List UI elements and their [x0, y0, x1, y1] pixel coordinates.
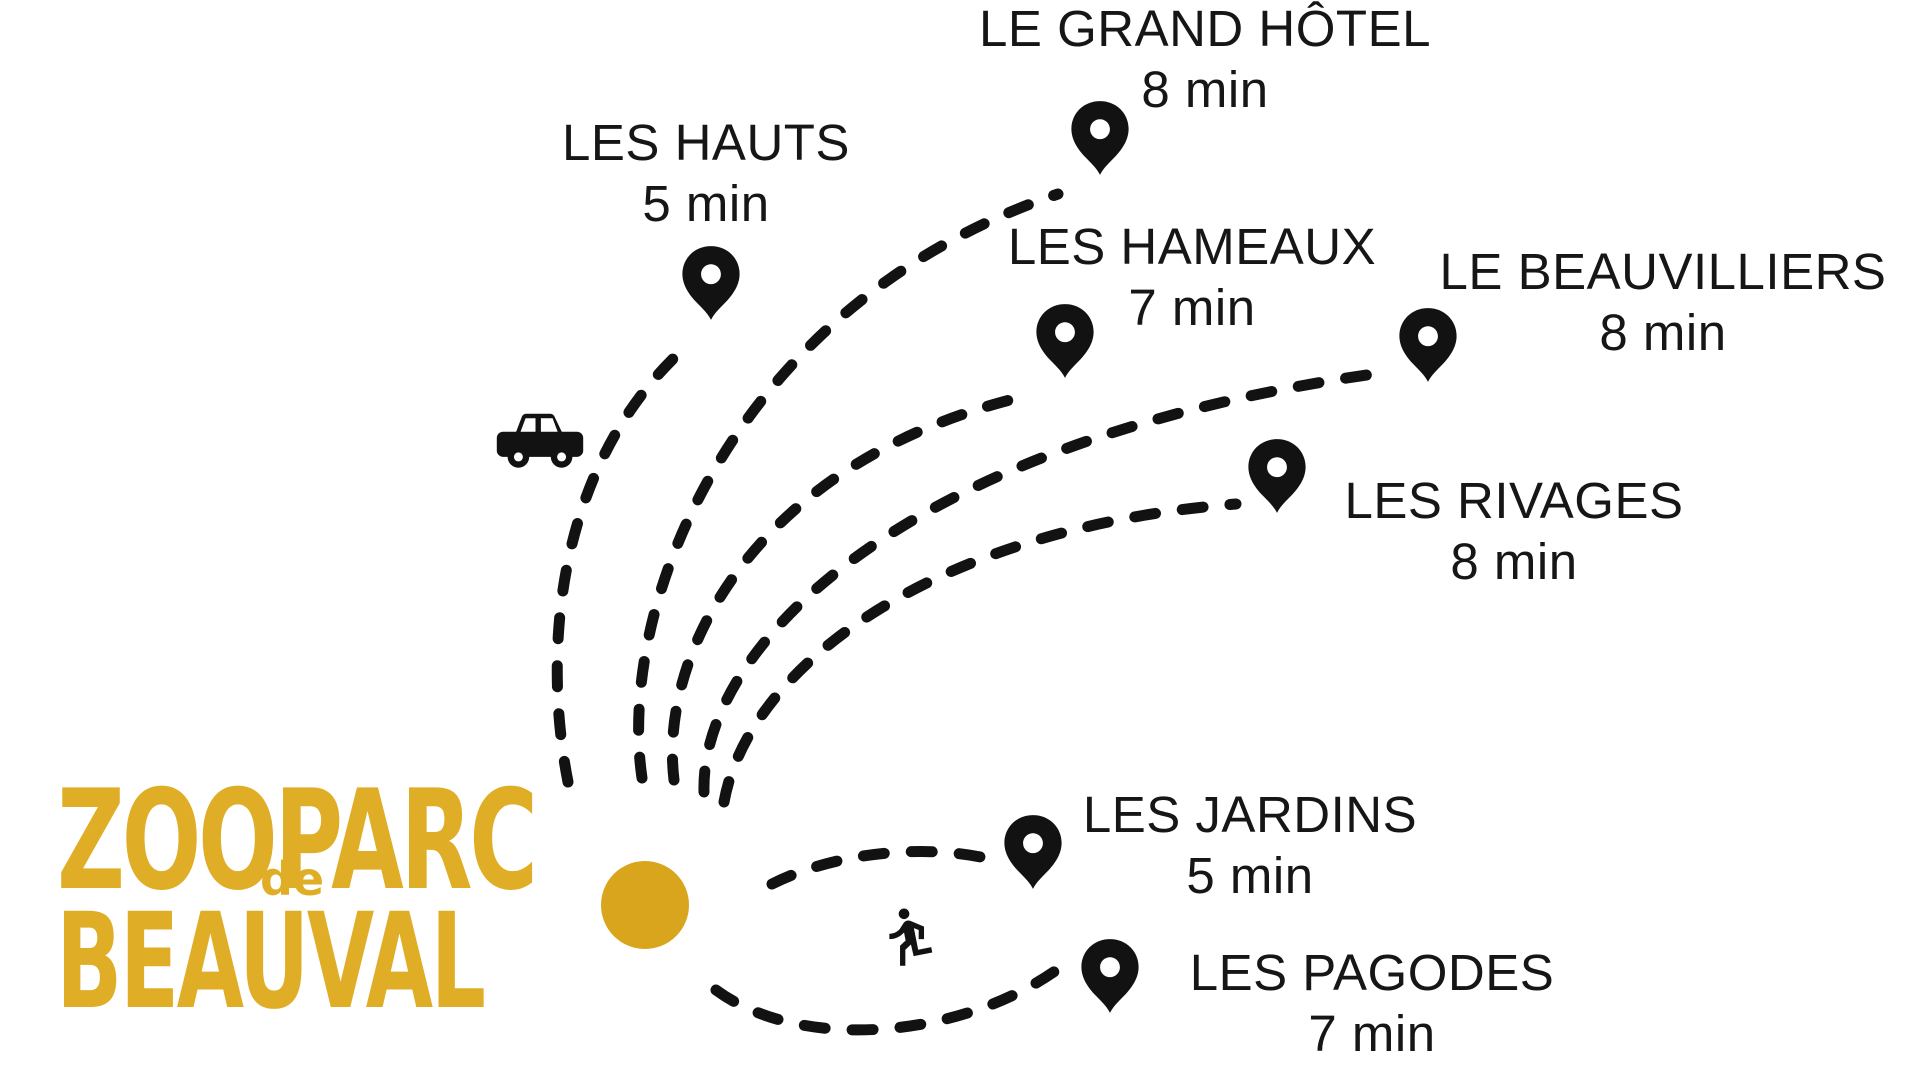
map-pin-les-hauts [678, 243, 744, 323]
destination-label: LES HAUTS 5 min [562, 112, 850, 234]
destination-time: 8 min [1440, 302, 1887, 363]
map-pin-les-jardins [1000, 812, 1066, 892]
route-walk-les-jardins [772, 852, 994, 884]
route-drive-le-beauvilliers [704, 372, 1388, 792]
map-pin-les-rivages [1244, 436, 1310, 516]
destination-label: LE GRAND HÔTEL 8 min [979, 0, 1431, 120]
zoo-origin-dot [601, 861, 689, 949]
destination-label: LE BEAUVILLIERS 8 min [1440, 241, 1887, 363]
destination-name: LES HAUTS [562, 112, 850, 173]
map-pin-les-pagodes [1077, 936, 1143, 1016]
destination-time: 8 min [1344, 531, 1683, 592]
destination-label: LES PAGODES 7 min [1190, 942, 1555, 1064]
destination-name: LES PAGODES [1190, 942, 1555, 1003]
destination-name: LES RIVAGES [1344, 470, 1683, 531]
logo-beauval-text: BEAUVAL [56, 896, 483, 1028]
destination-time: 7 min [1190, 1003, 1555, 1064]
hotel-travel-time-diagram: ZOOPARC de BEAUVAL LE GRAND HÔTEL 8 min … [0, 0, 1916, 1080]
destination-name: LE BEAUVILLIERS [1440, 241, 1887, 302]
destination-time: 7 min [1008, 277, 1376, 338]
destination-time: 5 min [1083, 845, 1417, 906]
destination-time: 8 min [979, 59, 1431, 120]
route-drive-les-rivages [724, 504, 1236, 802]
destination-name: LE GRAND HÔTEL [979, 0, 1431, 59]
destination-name: LES JARDINS [1083, 784, 1417, 845]
destination-time: 5 min [562, 173, 850, 234]
destination-label: LES RIVAGES 8 min [1344, 470, 1683, 592]
destination-label: LES JARDINS 5 min [1083, 784, 1417, 906]
destination-name: LES HAMEAUX [1008, 216, 1376, 277]
destination-label: LES HAMEAUX 7 min [1008, 216, 1376, 338]
car-icon [495, 404, 585, 472]
walking-person-icon [876, 888, 940, 985]
